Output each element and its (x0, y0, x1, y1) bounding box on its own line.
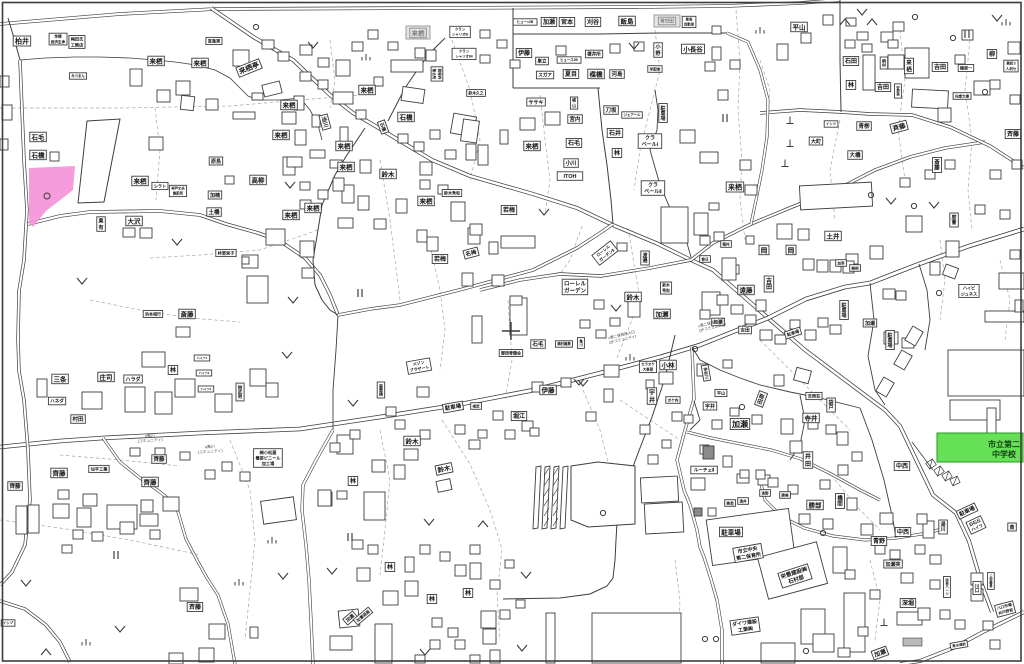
svg-text:齊藤: 齊藤 (143, 477, 158, 486)
svg-text:スガア: スガア (538, 72, 552, 79)
svg-text:遠藤: 遠藤 (740, 285, 754, 294)
svg-text:来栖: 来栖 (193, 58, 208, 67)
svg-text:刀坂: 刀坂 (605, 106, 617, 114)
svg-text:榎井所: 榎井所 (587, 51, 601, 58)
svg-text:斉藤: 斉藤 (1007, 130, 1020, 138)
svg-text:小: 小 (655, 44, 660, 51)
svg-text:林: 林 (465, 589, 471, 597)
svg-text:土井: 土井 (827, 231, 841, 240)
svg-text:吉田: 吉田 (877, 83, 889, 91)
svg-text:林: 林 (429, 595, 435, 603)
svg-text:河島: 河島 (611, 70, 623, 78)
svg-text:中学校: 中学校 (992, 449, 1017, 459)
svg-text:ボケ内: ボケ内 (668, 397, 679, 402)
svg-text:光甫文庫: 光甫文庫 (954, 93, 970, 98)
svg-text:林: 林 (614, 149, 620, 157)
svg-text:シャリオB: シャリオB (452, 32, 469, 37)
svg-text:齊藤: 齊藤 (9, 482, 21, 490)
svg-text:田: 田 (805, 461, 811, 468)
svg-text:山: 山 (572, 103, 576, 108)
svg-text:斉藤: 斉藤 (189, 603, 202, 611)
svg-text:来栖: 来栖 (339, 162, 354, 171)
svg-text:駐車場: 駐車場 (721, 527, 741, 536)
svg-text:ベールⅠ: ベールⅠ (642, 141, 659, 148)
svg-text:大橋: 大橋 (849, 151, 861, 159)
svg-text:勇: 勇 (989, 583, 992, 588)
svg-text:戸: 戸 (827, 404, 833, 411)
svg-text:仙平工業: 仙平工業 (91, 466, 109, 473)
svg-text:来栖: 来栖 (525, 141, 540, 150)
svg-text:来栖: 来栖 (274, 130, 289, 139)
svg-text:ハイツ1: ハイツ1 (197, 356, 208, 360)
svg-text:来栖: 来栖 (284, 210, 299, 219)
svg-text:加帯: 加帯 (836, 260, 845, 265)
svg-text:人材セ: 人材セ (1005, 66, 1017, 71)
svg-text:加楠: 加楠 (209, 192, 220, 199)
svg-text:鈴木: 鈴木 (382, 169, 396, 178)
svg-text:堀江: 堀江 (513, 412, 525, 420)
svg-text:林室栄子: 林室栄子 (218, 250, 236, 257)
svg-text:小林: 小林 (661, 360, 676, 369)
svg-text:飯島: 飯島 (620, 16, 635, 25)
svg-text:工務店: 工務店 (71, 41, 84, 48)
svg-text:川: 川 (939, 527, 945, 533)
svg-text:御西脊髄会: 御西脊髄会 (500, 349, 521, 355)
svg-text:ササキ: ササキ (528, 100, 543, 106)
svg-text:宮島実: 宮島実 (208, 38, 221, 45)
svg-text:邉: 邉 (641, 257, 648, 264)
svg-text:来栖: 来栖 (282, 100, 297, 109)
svg-text:来: 来 (905, 58, 912, 66)
svg-text:石井: 石井 (608, 129, 621, 137)
svg-text:ベールⅡ: ベールⅡ (644, 188, 662, 195)
svg-text:鈴木: 鈴木 (662, 283, 670, 288)
svg-text:相武: 相武 (472, 403, 480, 408)
svg-text:有: 有 (98, 224, 103, 231)
svg-text:林: 林 (170, 366, 176, 374)
svg-text:市立第二: 市立第二 (988, 439, 1020, 449)
svg-text:吉田: 吉田 (934, 63, 946, 71)
svg-text:楠: 楠 (379, 390, 383, 396)
svg-text:寺井: 寺井 (805, 413, 819, 422)
svg-text:自動車: 自動車 (684, 22, 695, 27)
svg-text:石橋: 石橋 (399, 112, 414, 121)
svg-text:ヒュー×2B: ヒュー×2B (517, 19, 534, 24)
svg-text:斎藤: 斎藤 (181, 309, 195, 318)
svg-text:ハイツ2: ハイツ2 (199, 371, 210, 375)
svg-text:秀和: 秀和 (661, 288, 670, 293)
svg-text:幾酒: 幾酒 (726, 500, 734, 505)
svg-text:来栖: 来栖 (419, 196, 434, 205)
svg-text:集合所: 集合所 (432, 68, 437, 80)
svg-text:宮内: 宮内 (569, 115, 581, 123)
svg-text:斎: 斎 (1009, 524, 1014, 531)
svg-text:村田: 村田 (72, 415, 84, 423)
svg-text:野: 野 (655, 50, 660, 57)
svg-text:ハイツ3: ハイツ3 (201, 387, 212, 391)
svg-text:浜本相行: 浜本相行 (145, 310, 161, 316)
svg-text:ジェアール: ジェアール (624, 112, 641, 117)
svg-text:美: 美 (895, 92, 900, 97)
svg-text:林: 林 (350, 477, 356, 485)
svg-text:加瀬: 加瀬 (655, 309, 670, 318)
svg-text:栖: 栖 (906, 65, 912, 73)
svg-text:川: 川 (578, 342, 583, 347)
svg-text:務町3: 務町3 (1006, 61, 1015, 66)
svg-text:ハラダ: ハラダ (125, 376, 140, 383)
svg-text:中西: 中西 (897, 528, 909, 536)
svg-text:経済生命: 経済生命 (51, 39, 66, 44)
svg-text:勝美: 勝美 (781, 492, 789, 497)
svg-text:村: 村 (882, 61, 886, 67)
svg-text:井: 井 (649, 396, 655, 404)
svg-text:ローレル: ローレル (564, 280, 587, 287)
svg-text:樹相: 樹相 (851, 265, 859, 270)
svg-text:イシヅ: イシヅ (3, 620, 14, 625)
svg-text:藤: 藤 (933, 164, 940, 172)
svg-text:ジュネス: ジュネス (961, 290, 977, 297)
svg-text:齊藤: 齊藤 (52, 468, 67, 477)
svg-text:ITOH: ITOH (563, 174, 576, 180)
svg-text:鈴木久之: 鈴木久之 (468, 90, 483, 95)
svg-text:間: 間 (837, 500, 843, 508)
svg-text:場: 場 (886, 342, 892, 349)
svg-text:湧井: 湧井 (739, 498, 747, 503)
svg-text:巣立: 巣立 (536, 58, 547, 65)
svg-text:ヒュース2B: ヒュース2B (560, 57, 578, 62)
svg-text:齊藤: 齊藤 (153, 455, 165, 463)
svg-text:柴島: 柴島 (685, 17, 693, 22)
svg-text:クラ: クラ (648, 182, 658, 189)
svg-text:岡: 岡 (788, 246, 795, 254)
svg-text:栗: 栗 (98, 218, 103, 225)
svg-text:鈴木: 鈴木 (627, 292, 641, 301)
svg-text:土橋: 土橋 (208, 208, 220, 216)
svg-text:楪橋: 楪橋 (590, 69, 604, 78)
svg-text:石毛: 石毛 (567, 139, 580, 147)
svg-text:加瀬実: 加瀬実 (884, 561, 900, 568)
svg-text:神戸丈夫: 神戸丈夫 (170, 186, 185, 191)
svg-text:三条: 三条 (54, 374, 68, 383)
svg-text:御案内: 御案内 (437, 68, 442, 80)
svg-text:稲村: 稲村 (722, 241, 730, 246)
svg-text:刈谷: 刈谷 (587, 18, 600, 26)
svg-text:場: 場 (659, 115, 665, 122)
svg-text:o黒川: o黒川 (205, 444, 215, 450)
svg-text:伊藤: 伊藤 (541, 385, 556, 394)
svg-text:クラン: クラン (455, 27, 466, 32)
svg-text:横村義勇: 横村義勇 (556, 341, 571, 346)
svg-text:庄司: 庄司 (100, 372, 113, 381)
svg-text:柳: 柳 (989, 50, 995, 58)
svg-text:カラオケ: カラオケ (641, 362, 655, 367)
svg-text:石毛: 石毛 (531, 340, 544, 348)
svg-text:来栖: 来栖 (727, 182, 742, 191)
svg-text:シャリオ84: シャリオ84 (455, 54, 472, 59)
svg-text:宮本: 宮本 (561, 18, 574, 26)
svg-text:ガーデン: ガーデン (564, 286, 587, 294)
svg-text:石毛: 石毛 (31, 132, 46, 141)
svg-text:原島: 原島 (211, 158, 221, 165)
svg-text:o黒川: o黒川 (145, 433, 155, 439)
svg-text:ルーチェⅡ: ルーチェⅡ (694, 467, 715, 474)
svg-text:小長谷: 小長谷 (682, 44, 703, 53)
svg-text:場: 場 (840, 312, 846, 319)
svg-text:吉田: 吉田 (740, 327, 750, 334)
svg-text:田: 田 (766, 284, 772, 291)
svg-text:平山: 平山 (717, 390, 725, 397)
svg-text:小川: 小川 (565, 159, 577, 167)
svg-text:大事屋: 大事屋 (643, 367, 654, 372)
svg-text:石橋: 石橋 (31, 150, 46, 159)
svg-text:クラ: クラ (645, 135, 655, 142)
svg-text:大町: 大町 (811, 138, 821, 145)
svg-text:来栖: 来栖 (306, 203, 321, 212)
svg-text:青野: 青野 (873, 537, 885, 545)
svg-text:中西: 中西 (896, 462, 908, 470)
svg-text:大沢: 大沢 (128, 216, 142, 225)
svg-text:みつまん: みつまん (71, 73, 85, 78)
svg-text:夏目: 夏目 (564, 70, 577, 78)
svg-text:高柳: 高柳 (252, 175, 266, 184)
svg-text:イシツ: イシツ (826, 122, 837, 126)
svg-text:岡: 岡 (761, 246, 768, 254)
svg-text:ハネダ: ハネダ (50, 398, 64, 405)
svg-text:井: 井 (805, 452, 811, 460)
svg-text:鈴木: 鈴木 (406, 436, 420, 445)
svg-text:林: 林 (848, 81, 854, 89)
svg-text:林: 林 (387, 563, 393, 571)
svg-text:伊藤: 伊藤 (517, 49, 531, 57)
svg-text:吉: 吉 (766, 277, 772, 285)
svg-text:来栖: 来栖 (149, 56, 164, 65)
svg-text:石田: 石田 (844, 58, 857, 65)
svg-text:鈴木秀和: 鈴木秀和 (444, 189, 460, 195)
svg-text:加瀬: 加瀬 (864, 320, 875, 327)
svg-text:春日: 春日 (700, 256, 709, 261)
svg-text:来栖: 来栖 (133, 176, 148, 185)
svg-text:若梅: 若梅 (434, 255, 446, 263)
svg-text:加瀬: 加瀬 (542, 18, 555, 26)
svg-text:来栖: 来栖 (337, 141, 352, 150)
svg-text:勝部: 勝部 (809, 500, 823, 509)
svg-text:青栁: 青栁 (858, 122, 870, 130)
svg-text:加工場: 加工場 (261, 460, 275, 467)
svg-text:クラン: クラン (459, 49, 470, 54)
svg-text:宇: 宇 (649, 388, 655, 396)
svg-text:男: 男 (238, 393, 243, 400)
svg-text:来栖: 来栖 (360, 85, 375, 94)
svg-text:若梅: 若梅 (503, 206, 515, 214)
svg-text:栗橋: 栗橋 (53, 34, 62, 39)
svg-text:加瀬: 加瀬 (731, 419, 748, 429)
svg-text:学配者: 学配者 (650, 66, 661, 71)
svg-text:深堀: 深堀 (902, 599, 914, 607)
svg-text:棚原一: 棚原一 (960, 64, 972, 70)
svg-text:横: 横 (571, 98, 576, 103)
svg-text:平山: 平山 (793, 22, 806, 31)
svg-text:吉岡荘: 吉岡荘 (808, 393, 821, 400)
svg-text:集配所: 集配所 (172, 191, 184, 196)
svg-text:柏井: 柏井 (15, 36, 29, 45)
svg-text:清野: 清野 (760, 490, 769, 495)
svg-text:宇井: 宇井 (705, 403, 715, 410)
